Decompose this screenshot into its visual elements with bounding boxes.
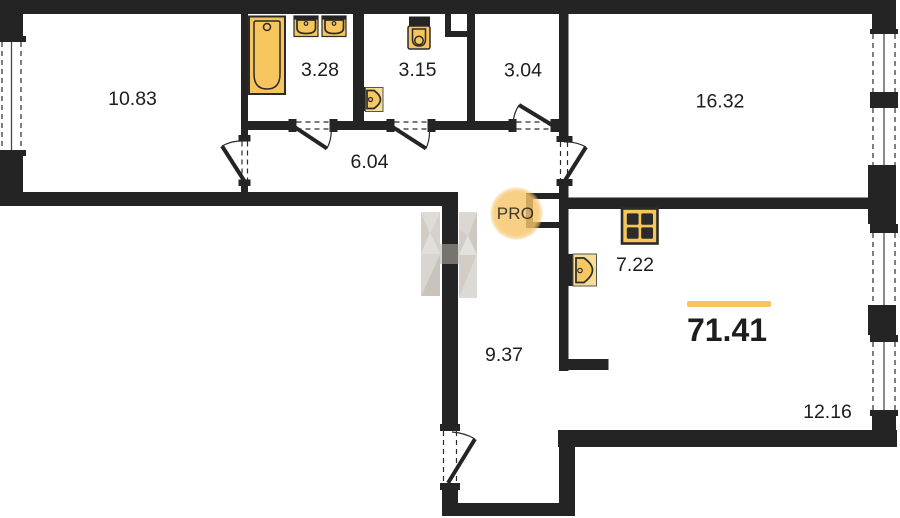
svg-text:6.04: 6.04 [351,151,389,173]
svg-text:3.15: 3.15 [399,59,437,81]
svg-text:7.22: 7.22 [616,254,654,276]
svg-text:12.16: 12.16 [803,401,852,423]
svg-text:71.41: 71.41 [687,312,767,348]
svg-text:3.04: 3.04 [504,60,542,82]
svg-text:PRO: PRO [497,204,534,223]
svg-text:16.32: 16.32 [696,91,745,113]
svg-text:10.83: 10.83 [108,88,157,110]
svg-text:3.28: 3.28 [301,59,339,81]
svg-text:9.37: 9.37 [485,344,523,366]
